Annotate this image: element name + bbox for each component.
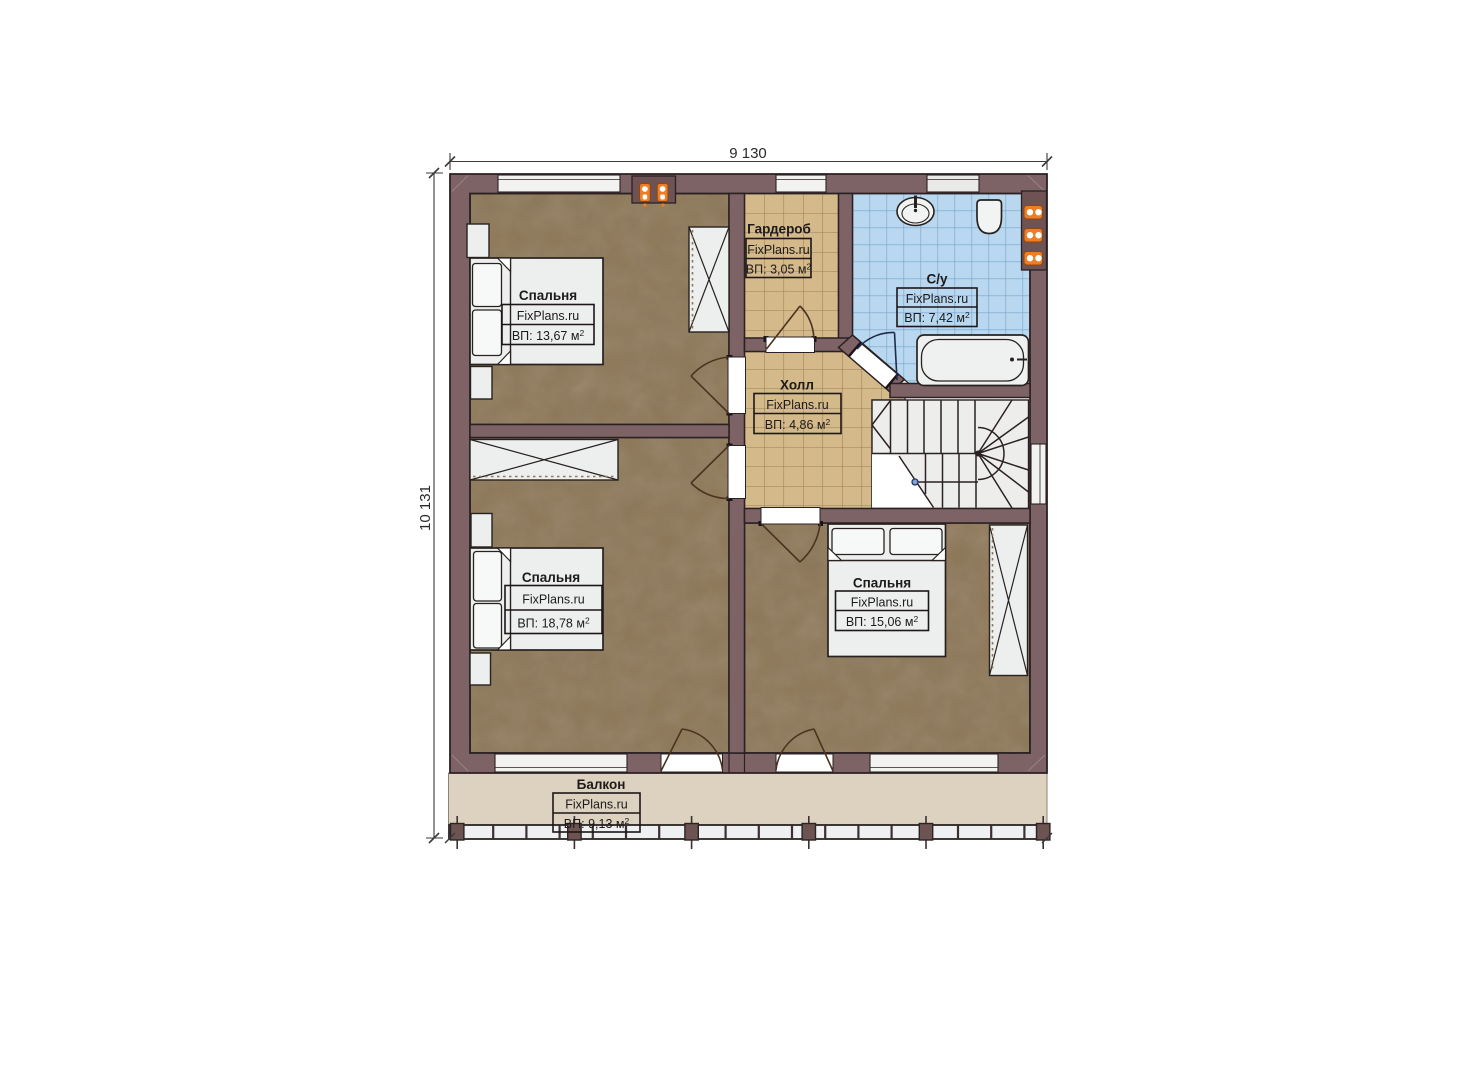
svg-text:9 130: 9 130: [729, 145, 767, 162]
svg-text:FixPlans.ru: FixPlans.ru: [565, 798, 628, 812]
svg-text:FixPlans.ru: FixPlans.ru: [851, 596, 914, 610]
svg-text:10 131: 10 131: [417, 485, 434, 531]
svg-text:ВП: 3,05 м2: ВП: 3,05 м2: [746, 262, 812, 277]
svg-text:ВП: 7,42 м2: ВП: 7,42 м2: [904, 310, 970, 325]
svg-text:ВП: 13,67 м2: ВП: 13,67 м2: [512, 328, 585, 343]
svg-text:Спальня: Спальня: [519, 288, 577, 303]
svg-text:Балкон: Балкон: [577, 777, 626, 792]
svg-text:Спальня: Спальня: [853, 576, 911, 591]
svg-text:ВП: 9,13 м2: ВП: 9,13 м2: [564, 816, 630, 831]
svg-text:FixPlans.ru: FixPlans.ru: [906, 292, 969, 306]
svg-text:Холл: Холл: [780, 378, 814, 393]
svg-text:С/у: С/у: [926, 272, 948, 287]
svg-text:ВП: 18,78 м2: ВП: 18,78 м2: [517, 616, 590, 631]
svg-text:Спальня: Спальня: [522, 570, 580, 585]
svg-text:Гардероб: Гардероб: [747, 222, 811, 237]
svg-text:FixPlans.ru: FixPlans.ru: [766, 398, 829, 412]
svg-text:ВП: 4,86 м2: ВП: 4,86 м2: [765, 417, 831, 432]
svg-text:FixPlans.ru: FixPlans.ru: [517, 309, 580, 323]
svg-text:FixPlans.ru: FixPlans.ru: [747, 243, 810, 257]
svg-text:FixPlans.ru: FixPlans.ru: [522, 593, 585, 607]
svg-text:ВП: 15,06 м2: ВП: 15,06 м2: [846, 614, 919, 629]
